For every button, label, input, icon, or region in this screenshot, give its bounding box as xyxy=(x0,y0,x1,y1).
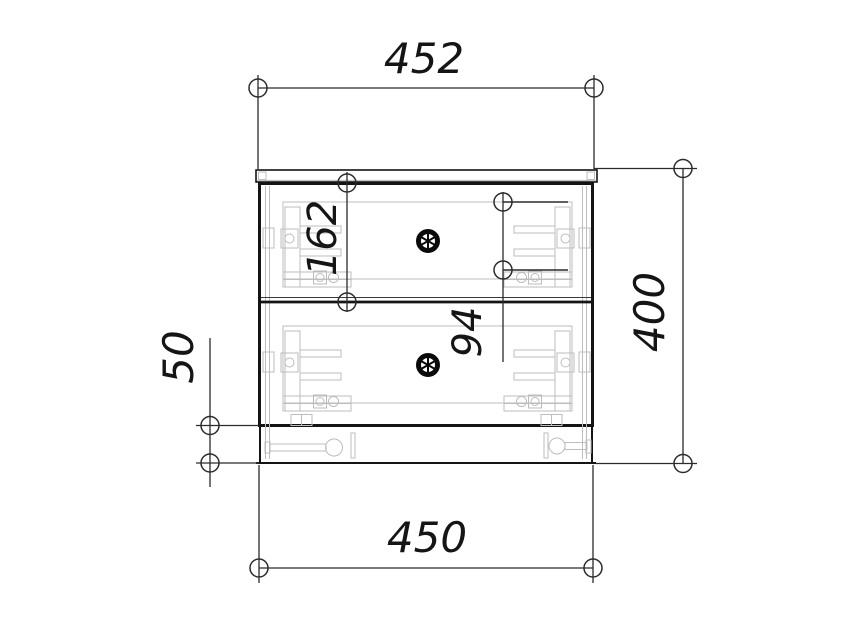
dimension-top-drawer-height: 162 xyxy=(300,172,356,312)
dimension-plinth-height: 50 xyxy=(154,330,259,487)
leg-left xyxy=(265,433,355,458)
cam-fitting-right xyxy=(587,172,595,180)
dimension-label-overall-height: 400 xyxy=(625,272,674,352)
leg-right xyxy=(544,433,591,458)
dimension-label-top-drawer-height: 162 xyxy=(300,200,346,276)
cam-fitting-left xyxy=(259,172,267,180)
dimension-label-plinth-height: 50 xyxy=(154,330,203,383)
technical-drawing-canvas: 452 400 450 50 162 xyxy=(0,0,856,623)
dimension-label-drawer-side-height: 94 xyxy=(445,307,491,358)
dimension-drawer-side-height: 94 xyxy=(445,192,568,362)
dimension-bottom-width: 450 xyxy=(250,465,602,583)
bottom-brackets xyxy=(291,415,562,426)
cabinet-front-elevation-drawing: 452 400 450 50 162 xyxy=(0,0,856,623)
drawer-divider xyxy=(261,298,591,303)
dimension-top-width: 452 xyxy=(249,34,603,169)
wheel-knob-icon-top-drawer xyxy=(419,232,438,251)
dimension-overall-height: 400 xyxy=(594,160,697,473)
dimension-label-top-width: 452 xyxy=(384,34,464,83)
top-panel xyxy=(256,170,597,182)
plinth xyxy=(256,426,596,464)
dimension-label-bottom-width: 450 xyxy=(387,513,467,562)
wheel-knob-icon-bottom-drawer xyxy=(419,356,438,375)
